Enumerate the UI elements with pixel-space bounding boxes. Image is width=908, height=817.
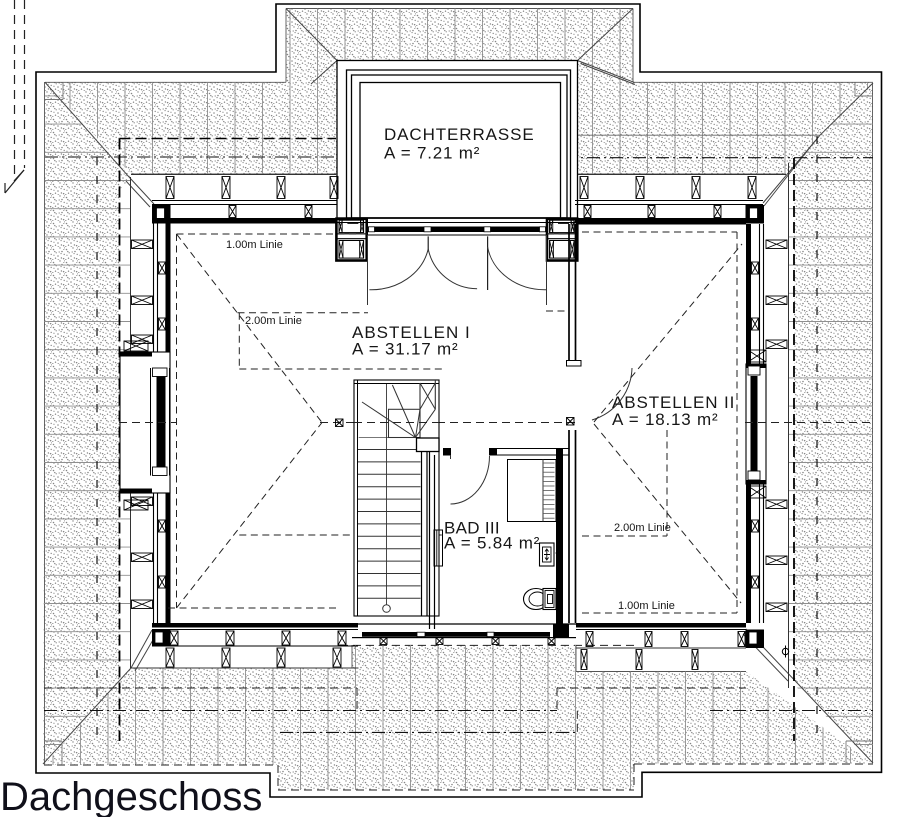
svg-text:A = 18.13 m²: A = 18.13 m² <box>612 410 718 429</box>
svg-text:A = 5.84 m²: A = 5.84 m² <box>444 534 540 553</box>
svg-text:1.00m Linie: 1.00m Linie <box>226 239 283 251</box>
svg-text:A = 31.17 m²: A = 31.17 m² <box>352 340 458 359</box>
svg-text:2.00m Linie: 2.00m Linie <box>614 522 671 534</box>
svg-text:A = 7.21 m²: A = 7.21 m² <box>384 144 480 163</box>
svg-text:DACHTERRASSE: DACHTERRASSE <box>384 125 535 144</box>
svg-text:2.00m Linie: 2.00m Linie <box>245 315 302 327</box>
svg-text:1.00m Linie: 1.00m Linie <box>618 600 675 612</box>
svg-text:Dachgeschoss: Dachgeschoss <box>0 775 262 817</box>
